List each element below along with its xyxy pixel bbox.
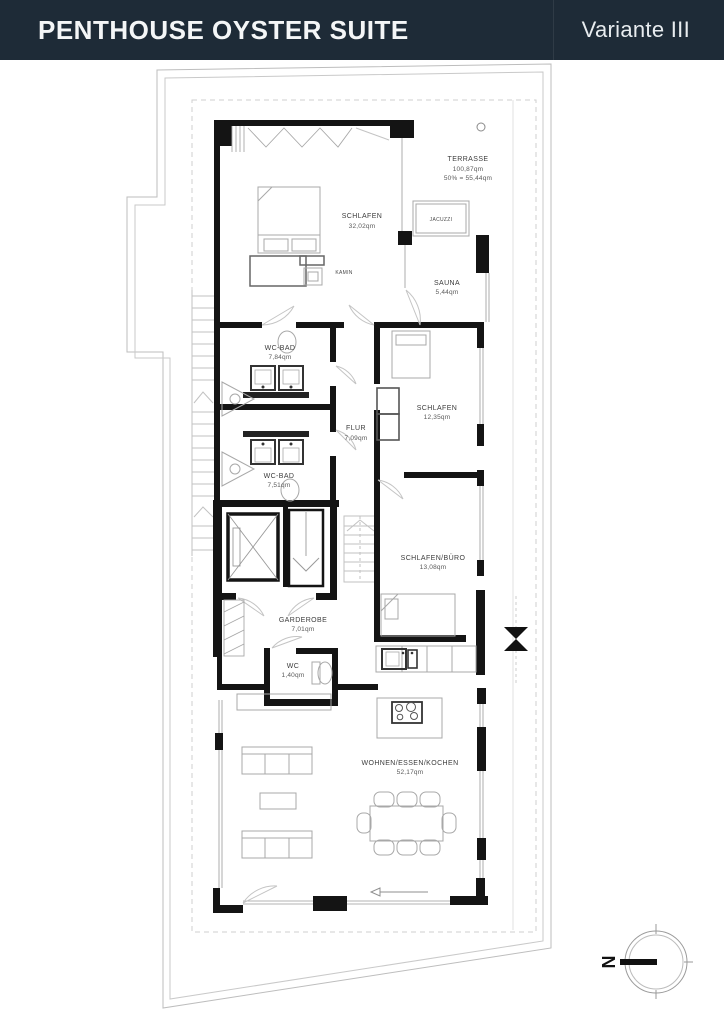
room-label-schlafen-master: SCHLAFEN 32,02qm [342,213,383,230]
bathroom-1-fixtures [222,331,309,416]
svg-text:7,01qm: 7,01qm [292,626,315,633]
property-boundary [127,64,551,1008]
north-compass: N [598,924,693,999]
svg-text:100,87qm: 100,87qm [453,166,484,173]
entry-arrow [371,888,428,896]
room-label-wc-bad-1: WC-BAD 7,84qm [265,345,296,361]
room-label-terrasse: TERRASSE 100,87qm 50% = 55,44qm [444,156,492,182]
svg-text:WC-BAD: WC-BAD [265,345,296,352]
column-marker [504,627,528,651]
room-label-schlafen-2: SCHLAFEN 12,35qm [417,405,458,421]
svg-text:SCHLAFEN/BÜRO: SCHLAFEN/BÜRO [401,554,466,562]
room-label-kamin: KAMIN [335,270,352,276]
svg-text:32,02qm: 32,02qm [349,223,376,230]
svg-text:7,84qm: 7,84qm [269,354,292,361]
floor-plan-drawing: TERRASSE 100,87qm 50% = 55,44qm SCHLAFEN… [0,0,724,1024]
north-pointer-bar [620,959,657,965]
kitchen-island [377,698,442,738]
svg-text:WC-BAD: WC-BAD [264,473,295,480]
office-bed [381,594,455,636]
terrace-drain [477,123,485,131]
room-label-wc: WC 1,40qm [282,663,305,679]
svg-text:12,35qm: 12,35qm [424,414,451,421]
svg-text:WOHNEN/ESSEN/KOCHEN: WOHNEN/ESSEN/KOCHEN [361,760,458,767]
room-label-schlafen-buero: SCHLAFEN/BÜRO 13,08qm [401,554,466,571]
coffee-table [260,793,296,809]
dresser [250,256,306,286]
sofa-2 [242,831,312,858]
elevator-and-stair-core [228,510,323,586]
svg-text:SAUNA: SAUNA [434,280,460,287]
room-label-garderobe: GARDEROBE 7,01qm [279,617,327,633]
svg-text:5,44qm: 5,44qm [436,289,459,296]
sofa-1 [242,747,312,774]
bedroom-2-furniture [377,331,430,440]
svg-text:7,51qm: 7,51qm [268,482,291,489]
bathroom-2-fixtures [222,431,309,501]
room-label-flur: FLUR 7,09qm [345,425,368,442]
wc-toilet [312,662,332,684]
exterior-staircase [192,290,215,556]
floor-plan-page: PENTHOUSE OYSTER SUITE Variante III [0,0,724,1024]
svg-text:WC: WC [287,663,299,670]
svg-text:TERRASSE: TERRASSE [448,156,489,163]
room-label-wohnen: WOHNEN/ESSEN/KOCHEN 52,17qm [361,760,458,776]
dining-table [357,792,456,855]
svg-text:52,17qm: 52,17qm [397,769,424,776]
room-label-jacuzzi: JACUZZI [430,217,453,223]
room-label-wc-bad-2: WC-BAD 7,51qm [264,473,295,489]
interior-staircase [344,516,377,582]
svg-text:SCHLAFEN: SCHLAFEN [417,405,458,412]
room-label-sauna: SAUNA 5,44qm [434,280,460,296]
north-label: N [598,956,618,969]
svg-text:13,08qm: 13,08qm [420,564,447,571]
svg-text:7,09qm: 7,09qm [345,435,368,442]
master-bed [258,187,320,253]
svg-text:GARDEROBE: GARDEROBE [279,617,327,624]
svg-text:50% = 55,44qm: 50% = 55,44qm [444,175,492,182]
svg-text:1,40qm: 1,40qm [282,672,305,679]
kitchen-counter [376,646,476,672]
svg-text:SCHLAFEN: SCHLAFEN [342,213,383,220]
svg-text:FLUR: FLUR [346,425,366,432]
